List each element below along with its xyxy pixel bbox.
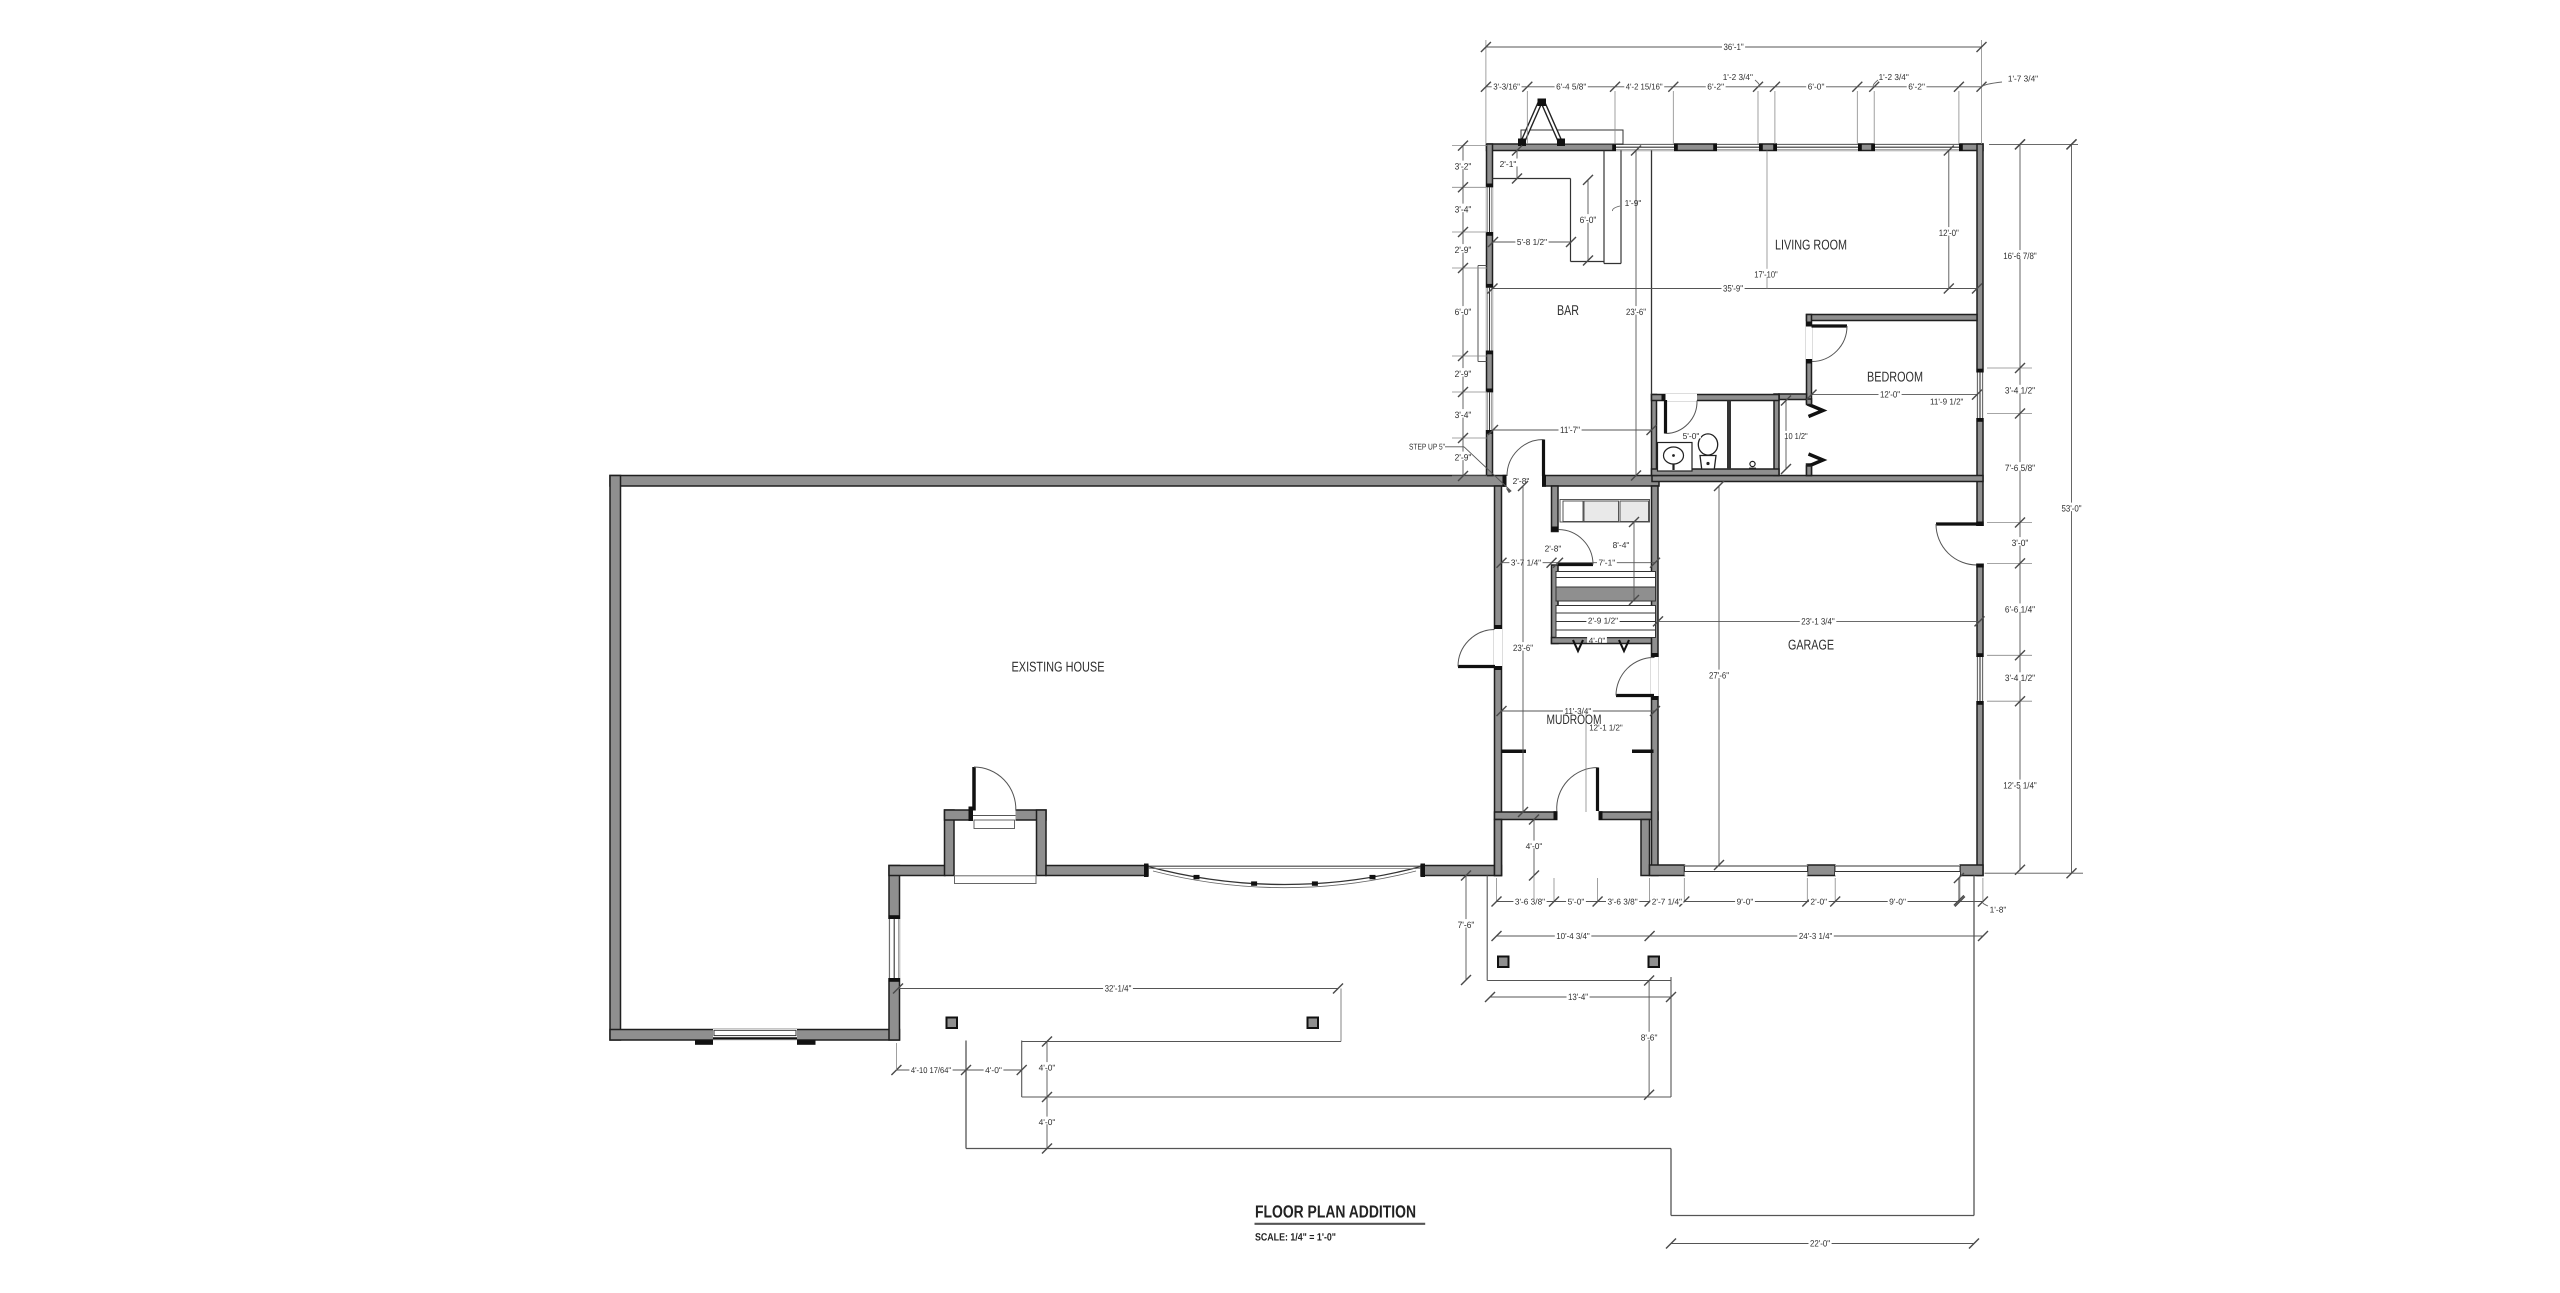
svg-text:7'-1": 7'-1" [1599,558,1616,568]
svg-text:4'-2 15/16": 4'-2 15/16" [1626,82,1663,92]
svg-text:2'-7 1/4": 2'-7 1/4" [1652,896,1682,906]
svg-text:2'-9 1/2": 2'-9 1/2" [1588,616,1618,626]
svg-text:12'-0": 12'-0" [1880,390,1900,400]
svg-text:10'-4 3/4": 10'-4 3/4" [1556,931,1590,941]
svg-text:3'-4 1/2": 3'-4 1/2" [2005,386,2035,396]
svg-text:3'-6 3/8": 3'-6 3/8" [1515,896,1545,906]
svg-text:12'-0": 12'-0" [1939,228,1959,238]
svg-text:3'-7 1/4": 3'-7 1/4" [1511,558,1541,568]
svg-text:5'-8 1/2": 5'-8 1/2" [1517,237,1547,247]
svg-text:2'-9": 2'-9" [1455,453,1472,463]
svg-text:23'-6": 23'-6" [1626,307,1646,317]
svg-text:24'-3 1/4": 24'-3 1/4" [1799,931,1833,941]
svg-text:17'-10": 17'-10" [1754,270,1777,280]
svg-text:FLOOR PLAN ADDITION: FLOOR PLAN ADDITION [1255,1202,1416,1222]
svg-text:5'-0": 5'-0" [1568,896,1585,906]
svg-text:7'-6": 7'-6" [1458,920,1475,930]
svg-text:2'-8": 2'-8" [1545,543,1562,553]
svg-text:27'-6": 27'-6" [1709,671,1729,681]
svg-text:2'-9": 2'-9" [1455,245,1472,255]
svg-text:13'-4": 13'-4" [1568,992,1588,1002]
svg-text:16'-6 7/8": 16'-6 7/8" [2003,251,2037,261]
svg-text:32'-1/4": 32'-1/4" [1105,984,1132,994]
svg-text:7'-6 5/8": 7'-6 5/8" [2005,463,2035,473]
svg-text:35'-9": 35'-9" [1723,284,1743,294]
svg-text:GARAGE: GARAGE [1788,638,1834,654]
svg-text:6'-6 1/4": 6'-6 1/4" [2005,604,2035,614]
svg-text:6'-0": 6'-0" [1580,215,1597,225]
svg-text:22'-0": 22'-0" [1810,1239,1830,1249]
svg-text:6'-2": 6'-2" [1707,82,1724,92]
svg-text:12'-5 1/4": 12'-5 1/4" [2003,781,2037,791]
svg-text:6'-2": 6'-2" [1908,82,1925,92]
svg-text:1'-2 3/4": 1'-2 3/4" [1879,72,1909,82]
svg-text:2'-0": 2'-0" [1810,896,1827,906]
svg-text:2'-8": 2'-8" [1513,476,1530,486]
svg-text:BAR: BAR [1557,303,1579,319]
svg-text:53'-0": 53'-0" [2061,504,2081,514]
svg-text:3'-2": 3'-2" [1455,162,1472,172]
svg-text:SCALE: 1/4" = 1'-0": SCALE: 1/4" = 1'-0" [1255,1232,1336,1244]
svg-text:6'-4 5/8": 6'-4 5/8" [1556,82,1586,92]
svg-text:1'-8": 1'-8" [1990,905,2007,915]
svg-text:LIVING ROOM: LIVING ROOM [1775,238,1847,254]
svg-text:3'-4": 3'-4" [1455,205,1472,215]
svg-text:3'-4": 3'-4" [1455,410,1472,420]
svg-text:23'-6": 23'-6" [1513,643,1533,653]
svg-text:11'-7": 11'-7" [1560,425,1580,435]
svg-text:23'-1 3/4": 23'-1 3/4" [1801,616,1835,626]
svg-text:9'-0": 9'-0" [1737,896,1754,906]
svg-text:4'-0": 4'-0" [1039,1117,1056,1127]
svg-text:MUDROOM: MUDROOM [1547,712,1602,727]
svg-text:6'-0": 6'-0" [1808,82,1825,92]
svg-text:2'-1": 2'-1" [1500,159,1517,169]
svg-text:36'-1": 36'-1" [1724,42,1744,52]
svg-text:4'-0": 4'-0" [1589,635,1606,645]
svg-text:STEP UP 5": STEP UP 5" [1409,441,1445,451]
svg-text:BEDROOM: BEDROOM [1867,370,1923,386]
svg-text:3'-3/16": 3'-3/16" [1493,82,1520,92]
svg-text:8'-6": 8'-6" [1641,1032,1658,1042]
svg-text:EXISTING HOUSE: EXISTING HOUSE [1012,660,1105,676]
svg-text:9'-0": 9'-0" [1889,896,1906,906]
svg-text:1'-2 3/4": 1'-2 3/4" [1723,72,1753,82]
svg-text:4'-0": 4'-0" [1039,1062,1056,1072]
svg-text:8'-4": 8'-4" [1613,540,1630,550]
svg-text:11'-9 1/2": 11'-9 1/2" [1930,396,1964,406]
svg-text:4'-0": 4'-0" [1526,841,1543,851]
svg-text:4'-10 17/64": 4'-10 17/64" [911,1065,951,1075]
svg-text:10 1/2": 10 1/2" [1784,431,1807,441]
svg-text:1'-9": 1'-9" [1625,198,1642,208]
svg-text:4'-0": 4'-0" [985,1065,1002,1075]
svg-text:2'-9": 2'-9" [1455,369,1472,379]
svg-text:3'-0": 3'-0" [2012,538,2029,548]
svg-text:3'-4 1/2": 3'-4 1/2" [2005,673,2035,683]
svg-text:5'-0": 5'-0" [1683,431,1700,441]
svg-text:1'-7 3/4": 1'-7 3/4" [2008,73,2038,83]
svg-text:3'-6 3/8": 3'-6 3/8" [1608,896,1638,906]
svg-text:6'-0": 6'-0" [1455,307,1472,317]
